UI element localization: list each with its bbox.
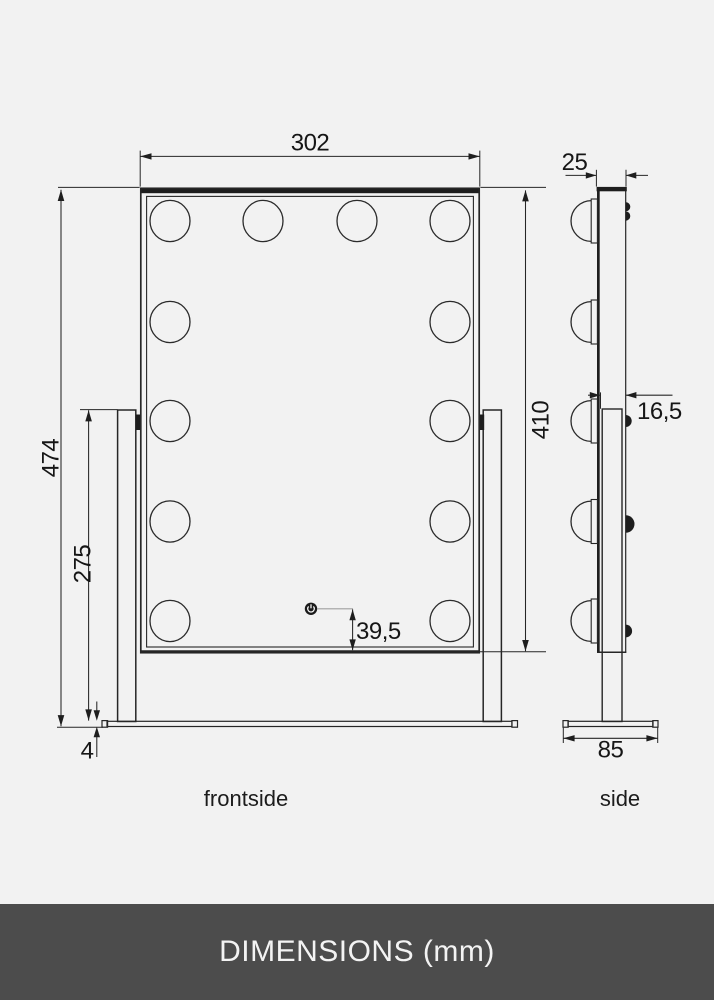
bulb-dome (571, 501, 591, 542)
dim-front-base-thickness-label: 4 (81, 738, 94, 765)
bulb-base (591, 399, 597, 443)
bulb (150, 301, 190, 342)
bulb (150, 600, 190, 641)
frame-inner (147, 196, 474, 647)
bulb (243, 200, 283, 241)
footer-title: DIMENSIONS (mm) (219, 935, 495, 969)
dimension-diagram-page: 302 474 275 (0, 0, 714, 1000)
knob (626, 625, 632, 638)
stand-post-right (483, 410, 501, 722)
bulb-base (591, 500, 597, 544)
bulb (430, 400, 470, 441)
side-view-caption: side (600, 786, 640, 811)
dim-front-switch-offset: 39,5 (349, 609, 400, 650)
bulb-base (591, 199, 597, 243)
footer-bar: DIMENSIONS (mm) (0, 904, 714, 1000)
dim-front-width-label: 302 (291, 130, 330, 157)
mirror-frame (140, 188, 480, 653)
dim-side-bracket-offset-label: 16,5 (637, 398, 682, 425)
bulb (337, 200, 377, 241)
bulb (430, 501, 470, 542)
hinge-right (480, 415, 484, 431)
bulb (150, 501, 190, 542)
hinge-left (136, 415, 140, 431)
bulb-dome (571, 401, 591, 442)
knob (626, 515, 635, 533)
bulb (150, 200, 190, 241)
knob (626, 211, 631, 220)
dim-side-base-depth: 85 (563, 728, 657, 764)
bulbs-side (571, 199, 597, 643)
bulb-dome (571, 601, 591, 642)
base-cap-right (512, 721, 518, 728)
front-view: 302 474 275 (38, 130, 555, 812)
base-plate-front (107, 721, 512, 726)
side-view: 25 16,5 85 side (562, 149, 682, 811)
dim-front-stand-height: 275 (70, 410, 118, 721)
knob (626, 415, 632, 427)
bulbs-front (150, 200, 470, 641)
mirror-dimension-drawing: 302 474 275 (0, 0, 714, 904)
side-panel-top-cap (597, 187, 627, 191)
stand-front (102, 410, 518, 727)
dim-front-switch-offset-label: 39,5 (356, 618, 401, 645)
bulb-dome (571, 201, 591, 242)
power-icon (305, 603, 317, 615)
dim-front-overall-height: 474 (38, 190, 104, 727)
back-knobs (626, 202, 635, 637)
bulb (430, 600, 470, 641)
stand-post-side (602, 409, 622, 722)
bulb (430, 301, 470, 342)
stand-side (563, 409, 658, 727)
bulb-base (591, 300, 597, 344)
dim-side-depth-label: 25 (562, 149, 588, 176)
dim-front-width: 302 (140, 130, 480, 187)
front-view-caption: frontside (204, 786, 288, 811)
frame-outer (141, 188, 479, 652)
stand-post-left (118, 410, 136, 722)
dim-front-mirror-height: 410 (476, 190, 555, 652)
dim-side-depth: 25 (562, 149, 648, 187)
bulb-dome (571, 302, 591, 343)
dim-side-base-depth-label: 85 (598, 737, 624, 764)
dim-front-overall-height-label: 474 (38, 439, 65, 478)
dim-front-mirror-height-label: 410 (528, 401, 555, 440)
dim-front-stand-height-label: 275 (70, 545, 97, 584)
bulb-base (591, 599, 597, 643)
bulb (430, 200, 470, 241)
knob (626, 202, 631, 211)
bulb (150, 400, 190, 441)
